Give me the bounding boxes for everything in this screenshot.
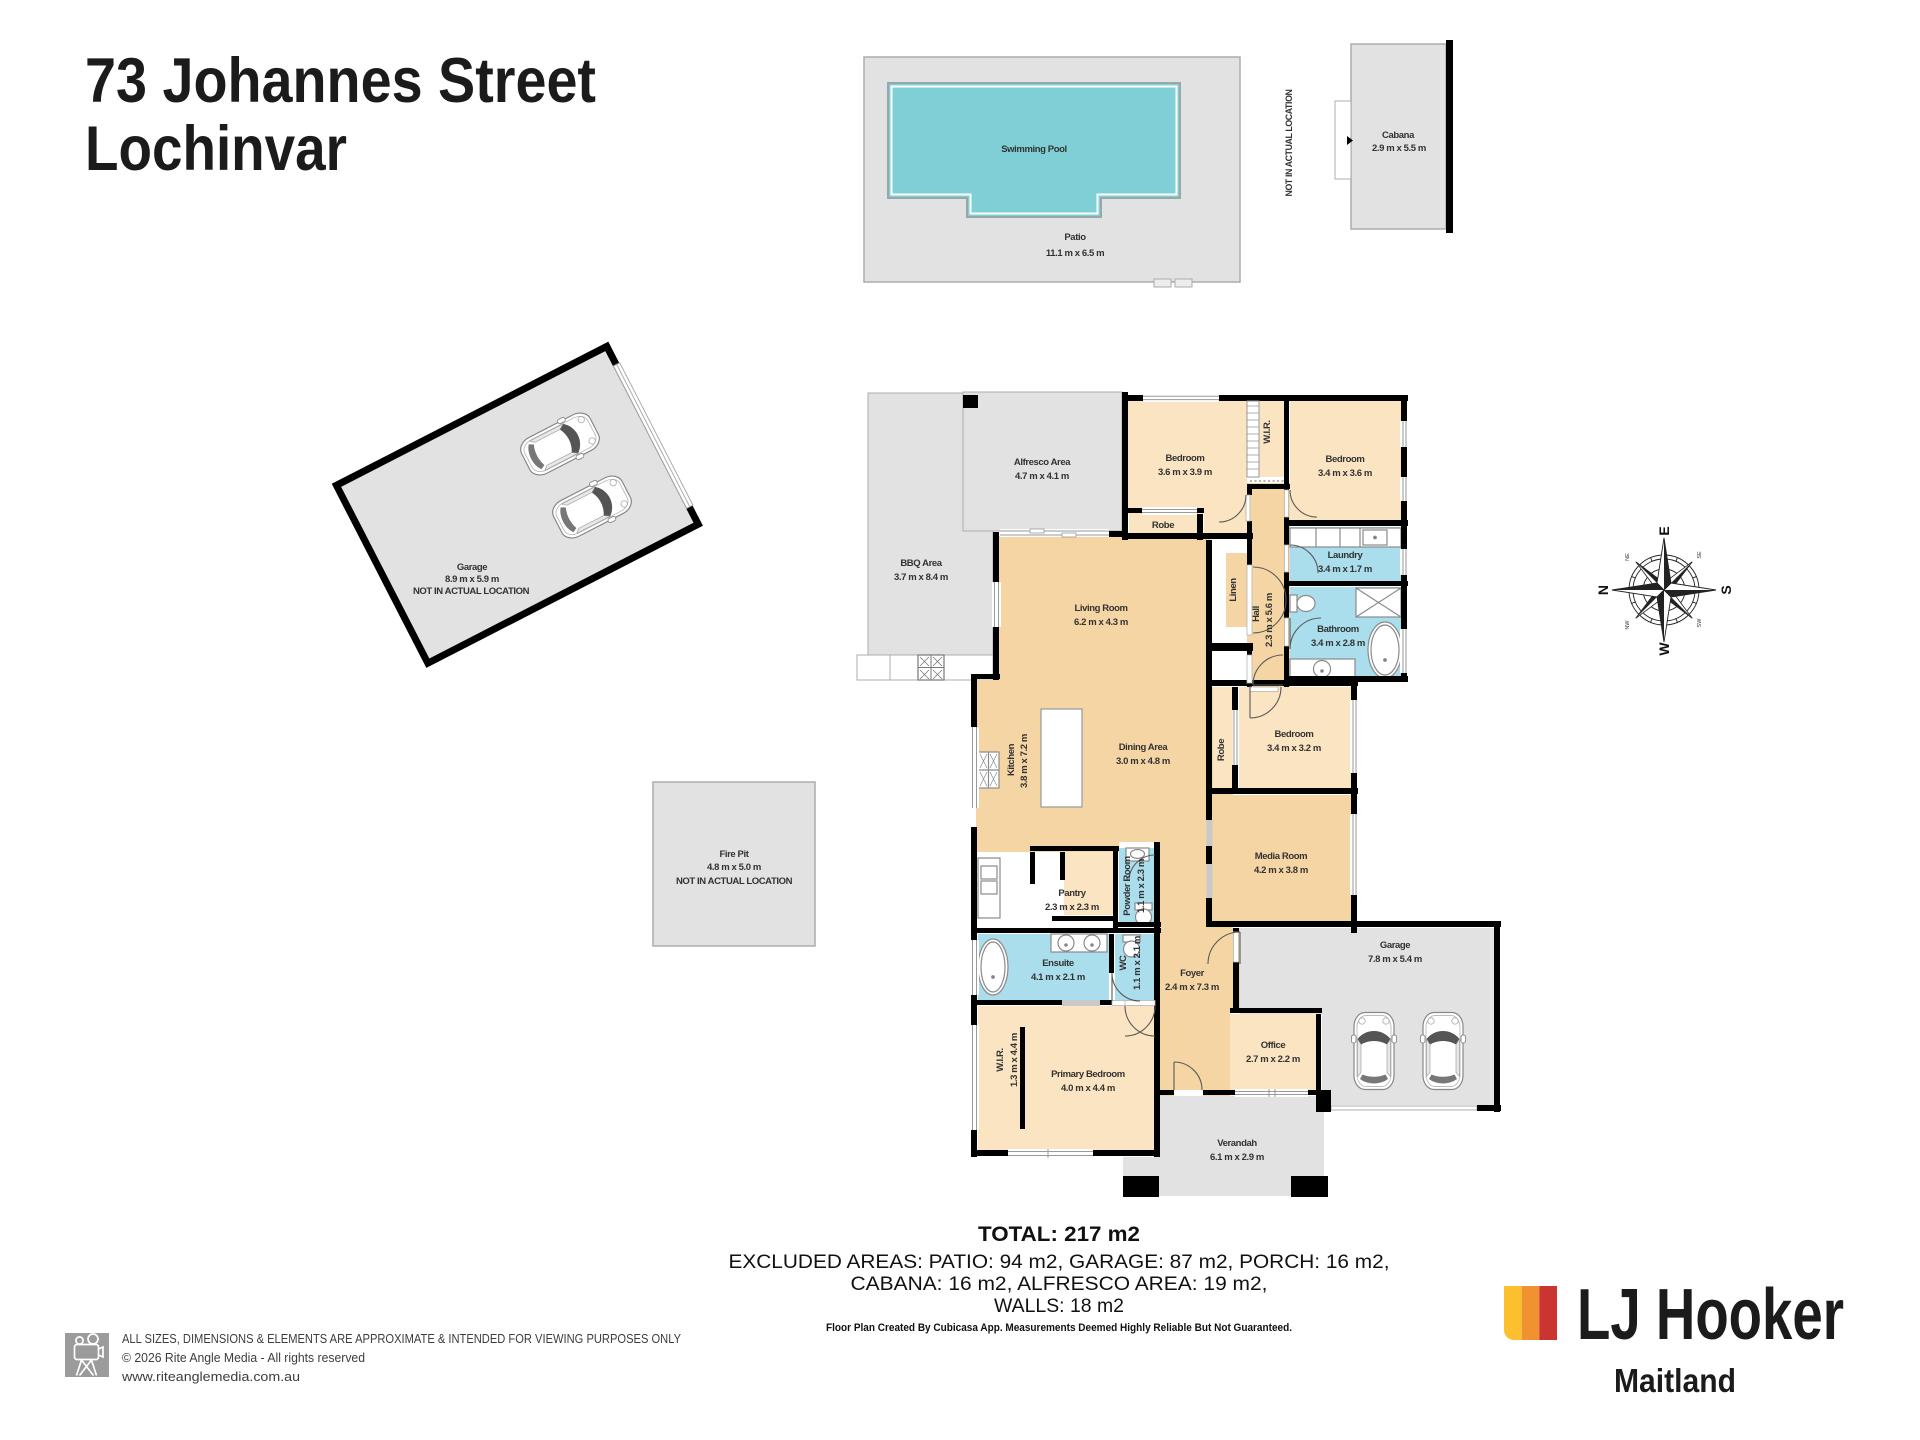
svg-text:NOT IN ACTUAL LOCATION: NOT IN ACTUAL LOCATION <box>676 876 793 887</box>
svg-text:Pantry: Pantry <box>1058 888 1086 899</box>
svg-text:Laundry: Laundry <box>1328 550 1364 561</box>
svg-text:Cabana: Cabana <box>1382 130 1415 141</box>
svg-text:Patio: Patio <box>1064 232 1086 243</box>
svg-text:Alfresco Area: Alfresco Area <box>1014 457 1071 468</box>
svg-text:4.0 m x 4.4 m: 4.0 m x 4.4 m <box>1061 1083 1115 1094</box>
svg-text:2.4 m x 7.3 m: 2.4 m x 7.3 m <box>1165 982 1219 993</box>
svg-text:4.1 m x 2.1 m: 4.1 m x 2.1 m <box>1031 972 1085 983</box>
svg-text:6.2 m x 4.3 m: 6.2 m x 4.3 m <box>1074 617 1128 628</box>
svg-text:N: N <box>1595 585 1611 595</box>
svg-text:4.2 m x 3.8 m: 4.2 m x 3.8 m <box>1254 865 1308 876</box>
svg-text:3.4 m x 2.8 m: 3.4 m x 2.8 m <box>1311 638 1365 649</box>
svg-text:SW: SW <box>1697 618 1703 628</box>
svg-text:NE: NE <box>1625 553 1631 561</box>
svg-text:Lochinvar: Lochinvar <box>85 114 347 184</box>
svg-text:3.4 m x 3.2 m: 3.4 m x 3.2 m <box>1267 743 1321 754</box>
svg-text:2.7 m x 2.2 m: 2.7 m x 2.2 m <box>1246 1054 1300 1065</box>
svg-text:2.3 m x 5.6 m: 2.3 m x 5.6 m <box>1264 593 1275 647</box>
svg-text:W: W <box>1656 642 1672 656</box>
svg-text:Foyer: Foyer <box>1180 968 1205 979</box>
svg-text:73 Johannes Street: 73 Johannes Street <box>85 46 596 116</box>
svg-text:W.I.R.: W.I.R. <box>995 1048 1006 1071</box>
svg-text:BBQ Area: BBQ Area <box>900 558 942 569</box>
svg-text:3.4 m x 1.7 m: 3.4 m x 1.7 m <box>1318 564 1372 575</box>
svg-text:Robe: Robe <box>1216 739 1227 761</box>
svg-text:1.3 m x 4.4 m: 1.3 m x 4.4 m <box>1009 1033 1020 1087</box>
svg-text:3.4 m x 3.6 m: 3.4 m x 3.6 m <box>1318 468 1372 479</box>
svg-text:Powder Room: Powder Room <box>1122 856 1133 915</box>
svg-text:1.1 m x 2.3 m: 1.1 m x 2.3 m <box>1136 859 1147 913</box>
svg-text:4.8 m x 5.0 m: 4.8 m x 5.0 m <box>707 862 761 873</box>
svg-text:LJ Hooker: LJ Hooker <box>1577 1275 1844 1355</box>
svg-text:Bedroom: Bedroom <box>1275 729 1314 740</box>
svg-text:3.7 m x 8.4 m: 3.7 m x 8.4 m <box>894 572 948 583</box>
svg-text:Fire Pit: Fire Pit <box>719 849 749 860</box>
svg-text:Dining Area: Dining Area <box>1119 742 1169 753</box>
svg-text:Swimming Pool: Swimming Pool <box>1001 144 1067 155</box>
svg-text:Linen: Linen <box>1228 578 1239 602</box>
svg-text:SE: SE <box>1697 551 1703 559</box>
svg-text:NW: NW <box>1625 620 1631 630</box>
svg-text:© 2026 Rite Angle Media - All: © 2026 Rite Angle Media - All rights res… <box>122 1351 365 1365</box>
svg-text:3.0 m x 4.8 m: 3.0 m x 4.8 m <box>1116 756 1170 767</box>
svg-text:7.8 m x 5.4 m: 7.8 m x 5.4 m <box>1368 954 1422 965</box>
svg-text:4.7 m x 4.1 m: 4.7 m x 4.1 m <box>1015 471 1069 482</box>
svg-text:Ensuite: Ensuite <box>1042 958 1074 969</box>
svg-text:Garage: Garage <box>1380 940 1410 951</box>
svg-text:6.1 m x 2.9 m: 6.1 m x 2.9 m <box>1210 1152 1264 1163</box>
svg-text:www.riteanglemedia.com.au: www.riteanglemedia.com.au <box>121 1370 300 1384</box>
svg-text:NOT IN ACTUAL LOCATION: NOT IN ACTUAL LOCATION <box>413 586 530 597</box>
svg-text:Primary Bedroom: Primary Bedroom <box>1051 1069 1125 1080</box>
svg-text:E: E <box>1656 526 1672 535</box>
svg-text:Floor Plan Created By Cubicasa: Floor Plan Created By Cubicasa App. Meas… <box>826 1322 1292 1334</box>
svg-text:2.3 m x 2.3 m: 2.3 m x 2.3 m <box>1045 902 1099 913</box>
svg-text:11.1 m x 6.5 m: 11.1 m x 6.5 m <box>1046 248 1104 259</box>
svg-text:Office: Office <box>1261 1040 1286 1051</box>
svg-text:2.9 m x 5.5 m: 2.9 m x 5.5 m <box>1372 143 1426 154</box>
svg-text:TOTAL: 217 m2: TOTAL: 217 m2 <box>978 1223 1140 1246</box>
svg-text:WALLS: 18 m2: WALLS: 18 m2 <box>994 1296 1124 1317</box>
svg-text:Living Room: Living Room <box>1074 603 1127 614</box>
svg-text:Verandah: Verandah <box>1217 1138 1257 1149</box>
svg-text:Bathroom: Bathroom <box>1317 624 1359 635</box>
svg-text:Maitland: Maitland <box>1614 1362 1736 1399</box>
svg-text:Garage: Garage <box>457 562 487 573</box>
svg-text:Hall: Hall <box>1251 606 1262 622</box>
svg-text:Bedroom: Bedroom <box>1326 454 1365 465</box>
svg-text:3.8 m x 7.2 m: 3.8 m x 7.2 m <box>1019 734 1030 788</box>
svg-text:EXCLUDED AREAS: PATIO: 94 m2,: EXCLUDED AREAS: PATIO: 94 m2, GARAGE: 87… <box>729 1252 1390 1273</box>
svg-text:Bedroom: Bedroom <box>1166 453 1205 464</box>
svg-text:ALL SIZES, DIMENSIONS & ELEMEN: ALL SIZES, DIMENSIONS & ELEMENTS ARE APP… <box>122 1332 682 1346</box>
svg-text:S: S <box>1718 585 1734 594</box>
svg-text:Kitchen: Kitchen <box>1006 743 1017 776</box>
svg-text:1.1 m x 2.1 m: 1.1 m x 2.1 m <box>1132 936 1143 990</box>
svg-text:Media Room: Media Room <box>1255 851 1307 862</box>
svg-text:8.9 m x 5.9 m: 8.9 m x 5.9 m <box>445 574 499 585</box>
svg-text:3.6 m x 3.9 m: 3.6 m x 3.9 m <box>1158 467 1212 478</box>
svg-text:W.I.R.: W.I.R. <box>1262 420 1273 443</box>
svg-text:WC: WC <box>1118 955 1129 971</box>
svg-text:Robe: Robe <box>1152 520 1174 531</box>
svg-text:NOT IN ACTUAL LOCATION: NOT IN ACTUAL LOCATION <box>1284 89 1295 196</box>
svg-text:CABANA: 16 m2, ALFRESCO AREA:: CABANA: 16 m2, ALFRESCO AREA: 19 m2, <box>851 1274 1268 1295</box>
